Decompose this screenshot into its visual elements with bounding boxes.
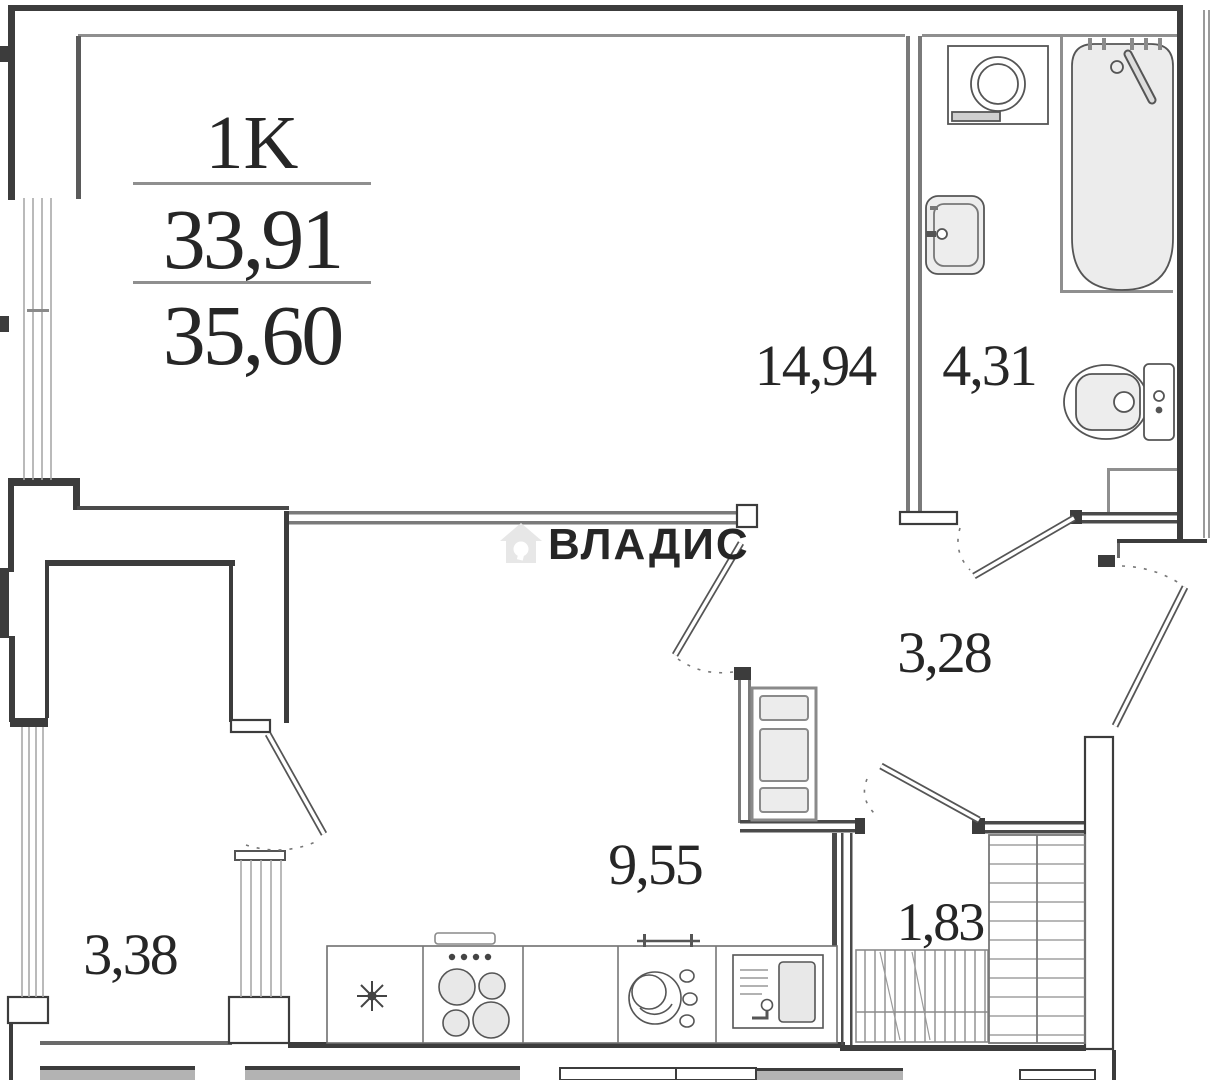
entrance-door bbox=[1115, 566, 1185, 726]
closet-door bbox=[864, 766, 979, 820]
unit-type-label: 1K bbox=[206, 101, 299, 185]
bathroom-sink-icon bbox=[926, 196, 984, 274]
floor-plan-drawing: ВЛАДИС 1K 33,91 35,60 14,94 4,31 3,28 9,… bbox=[0, 0, 1210, 1080]
bathroom-area-label: 4,31 bbox=[942, 333, 1036, 398]
kitchen-area-label: 9,55 bbox=[608, 832, 702, 897]
washing-machine-icon bbox=[948, 46, 1048, 124]
balcony-window bbox=[22, 727, 43, 997]
bottom-neighbor-walls bbox=[40, 1066, 1095, 1080]
fridge-icon bbox=[357, 981, 387, 1011]
kitchen-balcony-window bbox=[235, 851, 285, 997]
watermark: ВЛАДИС bbox=[500, 520, 750, 569]
bathtub-icon bbox=[1072, 38, 1173, 290]
living-area-label: 33,91 bbox=[163, 191, 342, 287]
hall-cabinet-icon bbox=[752, 688, 816, 820]
bathroom-door bbox=[958, 518, 1074, 576]
clothes-rail-icon bbox=[856, 950, 988, 1042]
balcony-door bbox=[246, 734, 324, 850]
table-divider-bottom bbox=[133, 281, 371, 284]
room-area-labels: 14,94 4,31 3,28 9,55 1,83 3,38 bbox=[83, 333, 1036, 987]
table-divider-top bbox=[133, 182, 371, 185]
house-icon bbox=[500, 523, 542, 563]
floor-plan: ВЛАДИС 1K 33,91 35,60 14,94 4,31 3,28 9,… bbox=[0, 0, 1210, 1080]
area-table: 1K 33,91 35,60 bbox=[133, 101, 371, 383]
closet-area-label: 1,83 bbox=[897, 892, 984, 952]
kitchen-fixtures bbox=[327, 933, 837, 1043]
kitchen-sink-icon bbox=[733, 955, 823, 1028]
living-room-area-label: 14,94 bbox=[755, 333, 878, 398]
total-area-label: 35,60 bbox=[163, 287, 342, 383]
hallway-area-label: 3,28 bbox=[897, 620, 991, 685]
watermark-text: ВЛАДИС bbox=[548, 520, 750, 569]
shelves-icon bbox=[989, 835, 1085, 1043]
balcony-area-label: 3,38 bbox=[83, 922, 177, 987]
living-room-window bbox=[24, 198, 51, 480]
toilet-icon bbox=[1064, 364, 1174, 440]
